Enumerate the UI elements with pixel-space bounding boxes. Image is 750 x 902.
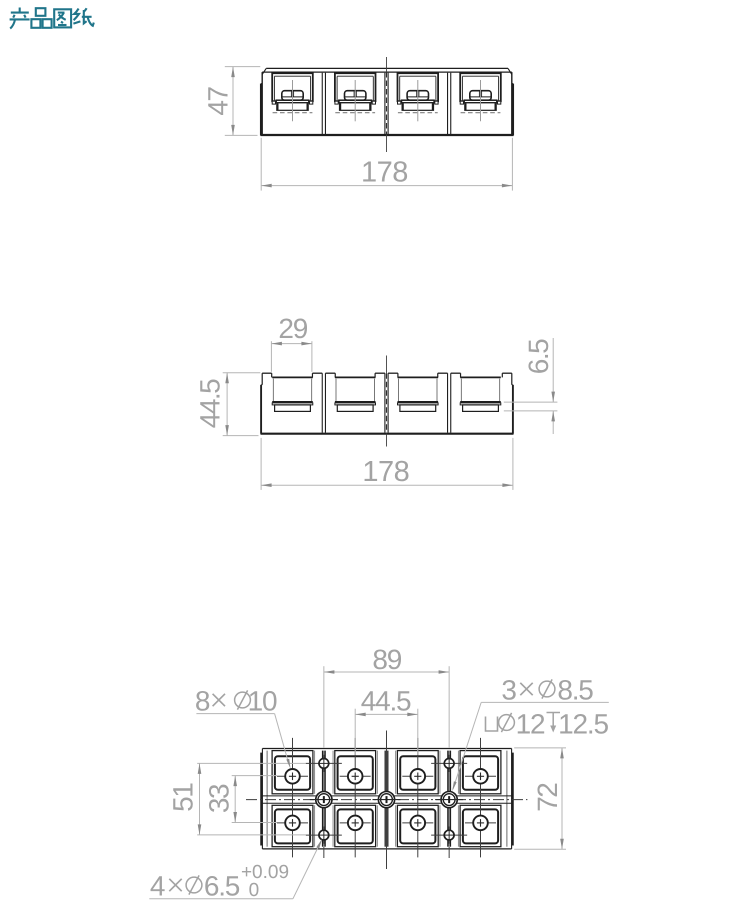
svg-text:44.5: 44.5: [195, 379, 226, 428]
svg-text:6.5: 6.5: [523, 339, 554, 374]
svg-text:47: 47: [203, 87, 234, 116]
svg-text:178: 178: [362, 456, 409, 488]
svg-text:0: 0: [249, 880, 260, 901]
svg-text:6.5: 6.5: [204, 871, 240, 902]
svg-text:12.5: 12.5: [558, 708, 608, 739]
svg-text:10: 10: [248, 685, 277, 716]
svg-text:178: 178: [361, 157, 408, 189]
svg-text:33: 33: [203, 784, 234, 813]
svg-text:89: 89: [372, 644, 401, 675]
svg-text:72: 72: [532, 783, 563, 812]
svg-text:8: 8: [195, 685, 210, 716]
svg-text:12: 12: [516, 708, 545, 739]
svg-text:51: 51: [168, 783, 199, 812]
svg-text:8.5: 8.5: [557, 675, 593, 706]
svg-text:3: 3: [501, 675, 516, 706]
svg-text:4: 4: [150, 871, 165, 902]
svg-text:44.5: 44.5: [361, 686, 411, 717]
svg-text:29: 29: [278, 313, 307, 344]
